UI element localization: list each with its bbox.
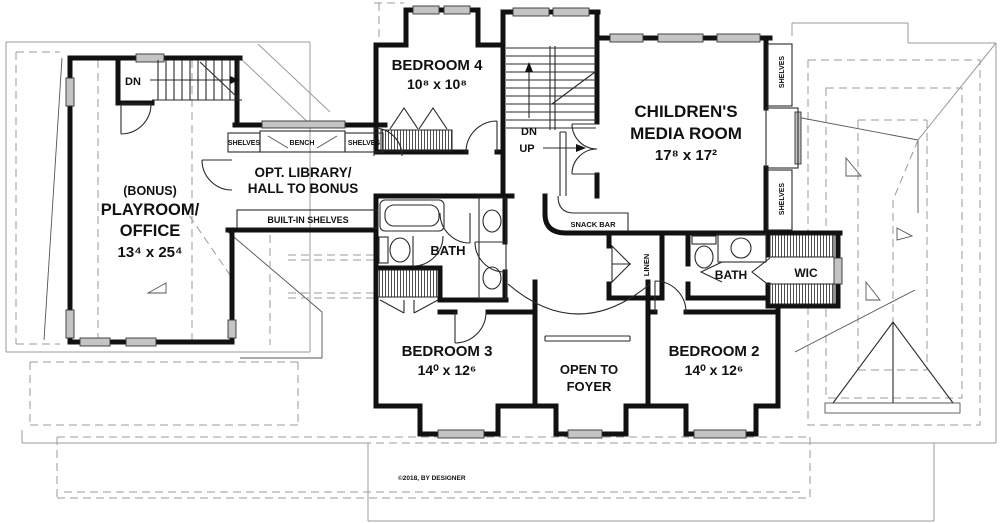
- label-media-name1: CHILDREN'S: [634, 102, 737, 121]
- window: [66, 78, 74, 106]
- label-shelves-right: SHELVES: [348, 140, 380, 147]
- label-bedroom2-dims: 14⁰ x 12⁶: [685, 362, 744, 378]
- closet-hatch: [381, 130, 452, 151]
- label-shelves-vertical-bottom: SHELVES: [779, 183, 786, 215]
- window: [80, 338, 110, 346]
- label-foyer-line2: FOYER: [567, 379, 612, 394]
- top-roof-dashed: [374, 3, 404, 40]
- window: [126, 338, 156, 346]
- label-bonus-dims: 13⁴ x 25⁴: [118, 244, 183, 261]
- closet-rod-hatch: [770, 235, 834, 257]
- window: [66, 310, 74, 338]
- label-bonus-name1: PLAYROOM/: [101, 201, 200, 219]
- label-bench: BENCH: [290, 140, 315, 147]
- window: [553, 8, 589, 16]
- gable: [825, 322, 960, 413]
- gable-triangle: [833, 322, 953, 403]
- right-roof-dashed-mid: [826, 88, 962, 398]
- label-dn-center: DN: [521, 126, 537, 138]
- label-built-in-shelves: BUILT-IN SHELVES: [267, 215, 348, 225]
- floor-plan: BEDROOM 4 10⁸ x 10⁸ CHILDREN'S MEDIA ROO…: [0, 0, 1000, 523]
- floor-plan-svg: BEDROOM 4 10⁸ x 10⁸ CHILDREN'S MEDIA ROO…: [0, 0, 1000, 523]
- porch-dashed: [57, 437, 810, 498]
- label-snack-bar: SNACK BAR: [571, 220, 617, 229]
- label-library-line2: HALL TO BONUS: [248, 181, 359, 196]
- closet-rod-hatch: [770, 284, 834, 304]
- label-shelves-left: SHELVES: [228, 140, 260, 147]
- window: [610, 34, 643, 42]
- label-bath1: BATH: [430, 243, 465, 258]
- label-bath2: BATH: [715, 268, 747, 282]
- label-library-line1: OPT. LIBRARY/: [254, 165, 351, 180]
- copyright-text: ©2018, BY DESIGNER: [398, 474, 466, 482]
- left-lower-roof-dashed: [30, 362, 298, 425]
- window: [136, 54, 164, 62]
- window: [694, 430, 746, 438]
- closet-hatch: [378, 270, 438, 297]
- label-bonus-name2: OFFICE: [120, 222, 181, 240]
- window: [658, 34, 703, 42]
- window: [413, 6, 439, 14]
- window: [513, 8, 549, 16]
- label-bedroom4-dims: 10⁸ x 10⁸: [407, 76, 467, 92]
- floor-bed4-bay: [406, 10, 478, 45]
- label-media-dims: 17⁸ x 17²: [655, 147, 717, 164]
- label-up-center: UP: [519, 143, 534, 155]
- window: [834, 258, 842, 284]
- label-dn-left: DN: [125, 76, 141, 88]
- label-bedroom3-dims: 14⁰ x 12⁶: [418, 362, 477, 378]
- label-foyer-line1: OPEN TO: [560, 362, 618, 377]
- label-bonus-prefix: (BONUS): [123, 184, 176, 198]
- label-wic: WIC: [794, 266, 818, 280]
- gable-base: [825, 403, 960, 413]
- left-roof-valley: [44, 58, 62, 340]
- window: [444, 6, 470, 14]
- label-linen: LINEN: [642, 254, 651, 277]
- window: [717, 34, 760, 42]
- lower-roof-edge: [228, 232, 322, 358]
- window: [568, 430, 602, 438]
- label-bedroom4-name: BEDROOM 4: [392, 57, 484, 74]
- label-media-name2: MEDIA ROOM: [630, 124, 742, 143]
- window: [262, 121, 345, 128]
- label-bedroom2-name: BEDROOM 2: [669, 343, 760, 360]
- left-roof-hips: [240, 44, 330, 126]
- porch-outline: [22, 430, 934, 521]
- label-bedroom3-name: BEDROOM 3: [402, 343, 493, 360]
- hall-area-dashed: [270, 235, 376, 345]
- window: [438, 430, 484, 438]
- label-shelves-vertical-top: SHELVES: [779, 56, 786, 88]
- right-roof-hip: [918, 43, 996, 140]
- window: [228, 320, 236, 338]
